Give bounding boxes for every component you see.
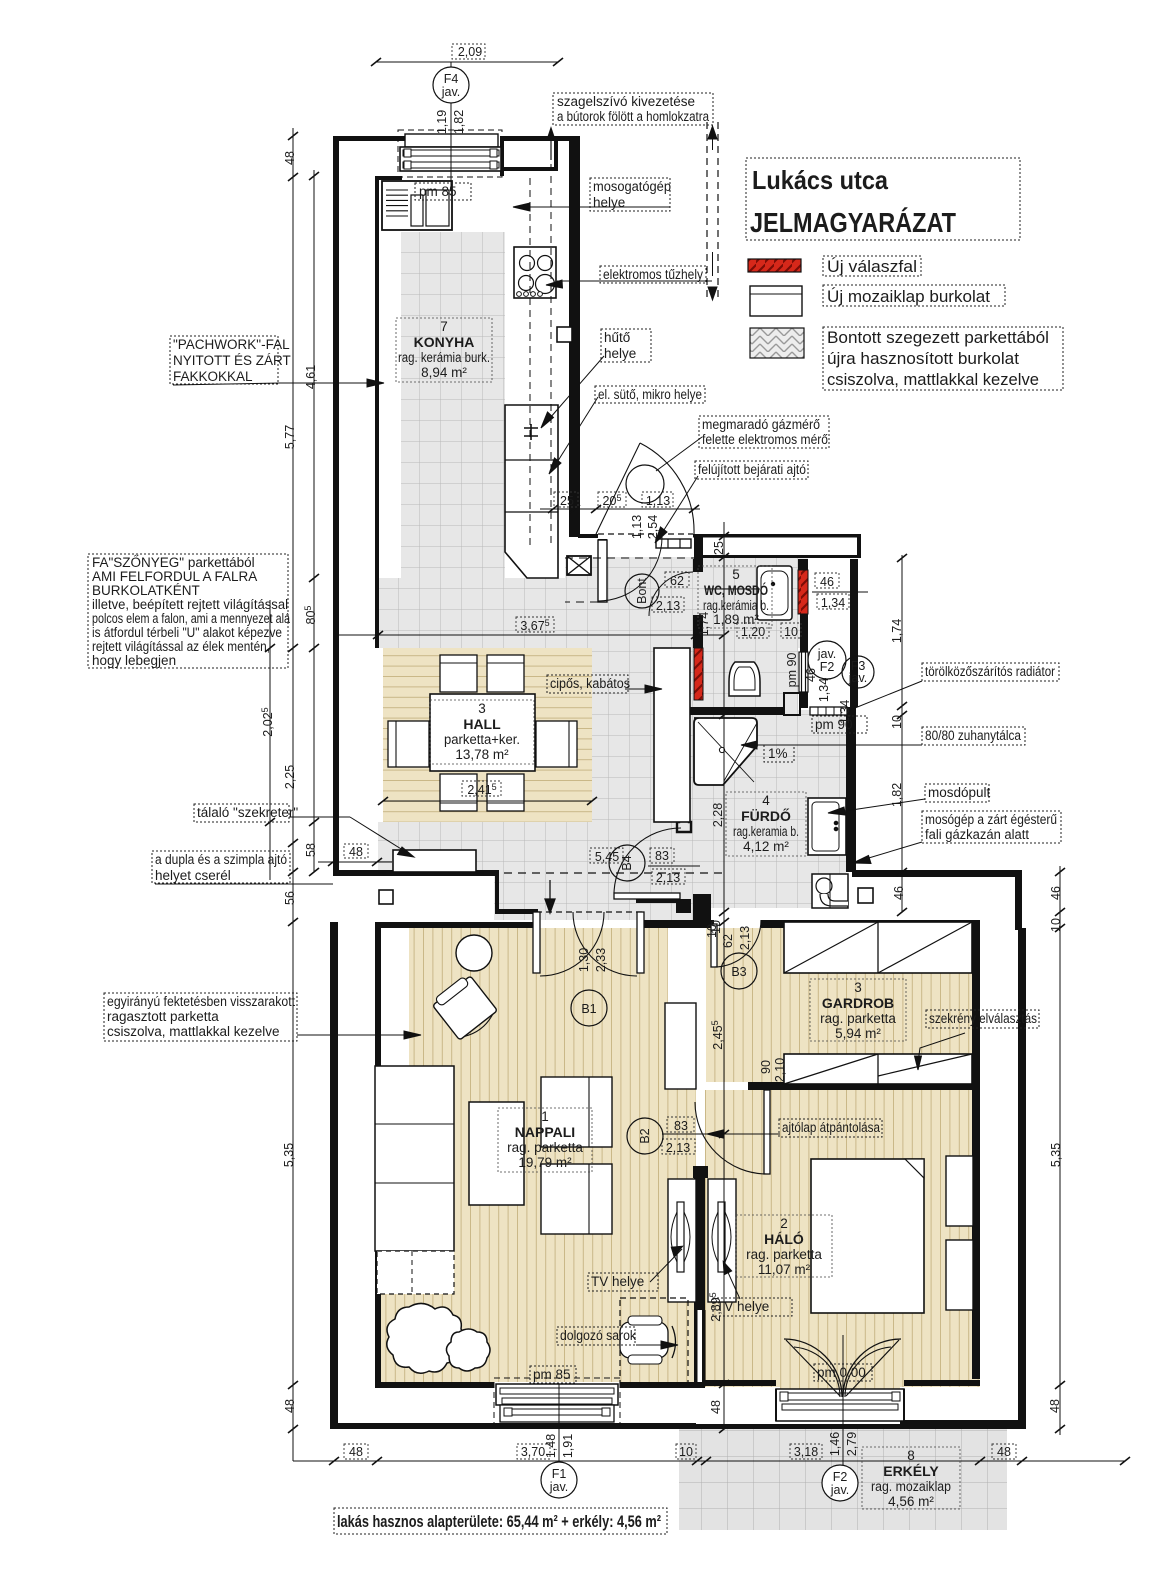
svg-text:83: 83	[655, 849, 669, 863]
svg-text:pm 85: pm 85	[419, 184, 457, 199]
svg-text:FÜRDŐ: FÜRDŐ	[741, 807, 791, 824]
svg-text:F1: F1	[552, 1467, 567, 1481]
svg-text:90: 90	[759, 1060, 773, 1074]
svg-text:FA"SZŐNYEG" parkettából: FA"SZŐNYEG" parkettából	[92, 555, 255, 570]
svg-text:cipős, kabátos: cipős, kabátos	[550, 676, 630, 691]
svg-text:1,74: 1,74	[697, 612, 711, 636]
svg-text:csiszolva, mattlakkal kezelve: csiszolva, mattlakkal kezelve	[827, 370, 1039, 389]
svg-text:illetve, beépített rejtett vil: illetve, beépített rejtett világítással	[92, 597, 288, 612]
svg-text:rag. parketta: rag. parketta	[507, 1140, 583, 1155]
svg-text:újra hasznosított burkolat: újra hasznosított burkolat	[827, 349, 1019, 368]
svg-text:2,13: 2,13	[656, 871, 680, 885]
svg-text:1,91: 1,91	[561, 1434, 575, 1458]
svg-text:19,79 m²: 19,79 m²	[518, 1155, 572, 1170]
svg-text:mosogatógép: mosogatógép	[593, 179, 671, 194]
svg-text:hűtő: hűtő	[604, 330, 630, 345]
svg-text:2,25: 2,25	[283, 765, 297, 789]
svg-text:Lukács utca: Lukács utca	[752, 165, 888, 195]
svg-text:el. sütő, mikro helye: el. sütő, mikro helye	[598, 387, 702, 402]
svg-text:1,34: 1,34	[821, 596, 845, 610]
svg-text:WC, MOSDÓ: WC, MOSDÓ	[704, 581, 768, 598]
svg-text:1,19: 1,19	[435, 110, 449, 134]
svg-text:Bontott szegezett parkettából: Bontott szegezett parkettából	[827, 328, 1049, 347]
svg-text:rag.kerámia b.: rag.kerámia b.	[703, 598, 769, 613]
svg-text:felújított bejárati ajtó: felújított bejárati ajtó	[698, 462, 806, 477]
svg-text:8,94 m²: 8,94 m²	[421, 365, 467, 380]
svg-text:11,07 m²: 11,07 m²	[758, 1262, 811, 1277]
svg-text:62: 62	[670, 574, 684, 588]
svg-text:helye: helye	[604, 346, 636, 361]
svg-text:is átfordul térbeli "U" alakot: is átfordul térbeli "U" alakot képezve	[92, 625, 282, 640]
svg-text:Bont: Bont	[635, 578, 649, 604]
svg-text:lakás hasznos alapterülete: 65: lakás hasznos alapterülete: 65,44 m² + e…	[337, 1512, 661, 1531]
svg-text:B2: B2	[638, 1128, 652, 1143]
svg-text:BURKOLATKÉNT: BURKOLATKÉNT	[92, 583, 200, 598]
svg-text:B4: B4	[620, 855, 634, 870]
svg-text:rag. parketta: rag. parketta	[820, 1011, 896, 1026]
svg-text:szekrény elválasztás: szekrény elválasztás	[929, 1011, 1037, 1026]
svg-text:Új válaszfal: Új válaszfal	[827, 257, 917, 276]
svg-text:48: 48	[1048, 1399, 1062, 1413]
svg-text:"PACHWORK"-FAL: "PACHWORK"-FAL	[173, 337, 290, 352]
svg-text:10: 10	[890, 715, 904, 729]
svg-text:4: 4	[762, 793, 770, 808]
svg-text:1: 1	[541, 1109, 549, 1124]
svg-text:TV helye: TV helye	[591, 1274, 644, 1289]
svg-text:1,48: 1,48	[544, 1434, 558, 1458]
svg-text:törölközőszárítós radiátor: törölközőszárítós radiátor	[925, 664, 1055, 679]
svg-text:5,77: 5,77	[283, 425, 297, 449]
svg-text:Új mozaiklap burkolat: Új mozaiklap burkolat	[827, 287, 990, 306]
svg-text:46: 46	[1049, 886, 1063, 900]
svg-text:egyirányú fektetésben visszara: egyirányú fektetésben visszarakott	[107, 994, 295, 1009]
svg-text:NAPPALI: NAPPALI	[515, 1124, 575, 1140]
svg-text:csiszolva, mattlakkal kezelve: csiszolva, mattlakkal kezelve	[107, 1024, 280, 1039]
svg-text:5: 5	[732, 567, 740, 582]
svg-text:F4: F4	[444, 72, 459, 86]
svg-text:1,89 m²: 1,89 m²	[713, 612, 759, 627]
svg-text:jav.: jav.	[830, 1483, 850, 1497]
svg-text:ragasztott parketta: ragasztott parketta	[107, 1009, 219, 1024]
svg-text:pm 0,00: pm 0,00	[817, 1365, 866, 1380]
svg-text:5,35: 5,35	[282, 1143, 296, 1167]
svg-text:3,18: 3,18	[794, 1445, 818, 1459]
svg-text:KONYHA: KONYHA	[414, 334, 475, 350]
svg-text:pm 90: pm 90	[785, 653, 799, 688]
svg-text:helye: helye	[593, 195, 625, 210]
svg-text:1,13: 1,13	[646, 494, 670, 508]
svg-text:2,13: 2,13	[656, 599, 680, 613]
svg-text:48: 48	[349, 1445, 363, 1459]
svg-text:48: 48	[283, 151, 297, 165]
svg-text:48: 48	[997, 1445, 1011, 1459]
svg-text:1,82: 1,82	[452, 110, 466, 134]
svg-text:58: 58	[304, 843, 318, 857]
svg-text:2,79: 2,79	[845, 1432, 859, 1456]
svg-text:1,74: 1,74	[890, 619, 904, 643]
svg-text:2,28: 2,28	[711, 803, 725, 827]
svg-text:rag. parketta: rag. parketta	[746, 1247, 822, 1262]
svg-text:3,70: 3,70	[521, 1445, 545, 1459]
svg-text:JELMAGYARÁZAT: JELMAGYARÁZAT	[750, 207, 956, 238]
svg-text:ajtólap átpántolása: ajtólap átpántolása	[782, 1120, 880, 1135]
svg-text:48: 48	[349, 845, 363, 859]
svg-text:1,20: 1,20	[741, 625, 765, 639]
svg-text:10: 10	[784, 625, 798, 639]
svg-text:7: 7	[440, 319, 448, 334]
svg-text:46: 46	[892, 886, 906, 900]
svg-text:NYITOTT ÉS ZÁRT: NYITOTT ÉS ZÁRT	[173, 353, 291, 368]
svg-text:25: 25	[560, 494, 574, 508]
svg-text:2,13: 2,13	[738, 926, 752, 950]
svg-text:4,61: 4,61	[304, 365, 318, 389]
svg-text:pm 90: pm 90	[815, 717, 853, 732]
svg-text:2,09: 2,09	[458, 45, 482, 59]
svg-text:GARDROB: GARDROB	[822, 995, 894, 1011]
svg-text:2,10: 2,10	[773, 1058, 787, 1082]
svg-text:rag. mozaiklap: rag. mozaiklap	[871, 1479, 951, 1494]
svg-text:48: 48	[283, 1399, 297, 1413]
svg-text:a dupla és a szimpla ajtó: a dupla és a szimpla ajtó	[155, 852, 287, 867]
svg-text:TV helye: TV helye	[716, 1299, 769, 1314]
svg-text:1%: 1%	[768, 746, 788, 761]
svg-text:56: 56	[283, 891, 297, 905]
svg-text:rag. kerámia burk.: rag. kerámia burk.	[398, 350, 490, 365]
svg-text:pm 85: pm 85	[533, 1367, 571, 1382]
svg-text:4,56 m²: 4,56 m²	[888, 1494, 934, 1509]
svg-text:dolgozó sarok: dolgozó sarok	[560, 1328, 636, 1343]
svg-text:13,78 m²: 13,78 m²	[455, 747, 509, 762]
svg-text:mosdópult: mosdópult	[928, 785, 991, 800]
svg-text:jav.: jav.	[817, 647, 837, 661]
svg-text:HÁLÓ: HÁLÓ	[764, 1230, 804, 1247]
svg-text:10: 10	[705, 924, 719, 938]
svg-text:mosógép a zárt égésterű: mosógép a zárt égésterű	[925, 812, 1057, 827]
svg-text:46: 46	[820, 575, 834, 589]
svg-text:jav.: jav.	[441, 85, 461, 99]
svg-text:2,33: 2,33	[594, 948, 608, 972]
svg-text:FAKKOKKAL: FAKKOKKAL	[173, 369, 253, 384]
svg-text:fali gázkazán alatt: fali gázkazán alatt	[925, 827, 1029, 842]
svg-text:megmaradó gázmérő: megmaradó gázmérő	[702, 417, 820, 432]
svg-text:jav.: jav.	[848, 671, 868, 685]
svg-text:HALL: HALL	[463, 716, 501, 732]
svg-text:48: 48	[709, 1400, 723, 1414]
svg-text:ERKÉLY: ERKÉLY	[883, 1463, 939, 1479]
svg-text:a bútorok fölött a homlokzatra: a bútorok fölött a homlokzatra	[557, 109, 709, 124]
svg-text:1,30: 1,30	[577, 948, 591, 972]
svg-text:1,34: 1,34	[817, 678, 831, 702]
svg-text:tálaló "szekreter": tálaló "szekreter"	[197, 805, 298, 820]
svg-text:10: 10	[679, 1445, 693, 1459]
svg-text:B3: B3	[731, 965, 746, 979]
svg-text:1,46: 1,46	[828, 1432, 842, 1456]
svg-text:felette elektromos mérő: felette elektromos mérő	[702, 432, 828, 447]
svg-text:jav.: jav.	[549, 1480, 569, 1494]
svg-text:10: 10	[1049, 918, 1063, 932]
svg-text:62: 62	[721, 934, 735, 948]
svg-text:AMI FELFORDUL A FALRA: AMI FELFORDUL A FALRA	[92, 569, 257, 584]
svg-text:5,94 m²: 5,94 m²	[835, 1026, 881, 1041]
svg-text:2,13: 2,13	[666, 1141, 690, 1155]
svg-text:F2: F2	[833, 1470, 848, 1484]
svg-text:83: 83	[674, 1119, 688, 1133]
svg-text:szagelszívó kivezetése: szagelszívó kivezetése	[557, 94, 695, 109]
svg-text:B1: B1	[581, 1002, 596, 1016]
svg-text:polcos elem a falon, ami a men: polcos elem a falon, ami a mennyezet alá	[92, 611, 290, 626]
svg-text:4,12 m²: 4,12 m²	[743, 839, 789, 854]
svg-text:rejtett világítással az élek m: rejtett világítással az élek mentén,	[92, 639, 270, 654]
svg-text:80/80 zuhanytálca: 80/80 zuhanytálca	[925, 728, 1021, 743]
svg-text:5,35: 5,35	[1049, 1143, 1063, 1167]
svg-text:rag.keramia b.: rag.keramia b.	[733, 824, 799, 839]
svg-text:F2: F2	[820, 660, 835, 674]
svg-text:3: 3	[478, 701, 486, 716]
svg-text:parketta+ker.: parketta+ker.	[444, 732, 520, 747]
svg-text:8: 8	[907, 1448, 915, 1463]
svg-text:helyet cserél: helyet cserél	[155, 868, 231, 883]
svg-text:1,13: 1,13	[630, 515, 644, 539]
svg-text:5,45: 5,45	[595, 850, 619, 864]
svg-text:elektromos tűzhely: elektromos tűzhely	[603, 267, 703, 282]
svg-text:hogy lebegjen: hogy lebegjen	[92, 653, 176, 668]
svg-text:25: 25	[712, 541, 726, 555]
svg-text:2: 2	[780, 1216, 788, 1231]
svg-text:3: 3	[854, 980, 862, 995]
